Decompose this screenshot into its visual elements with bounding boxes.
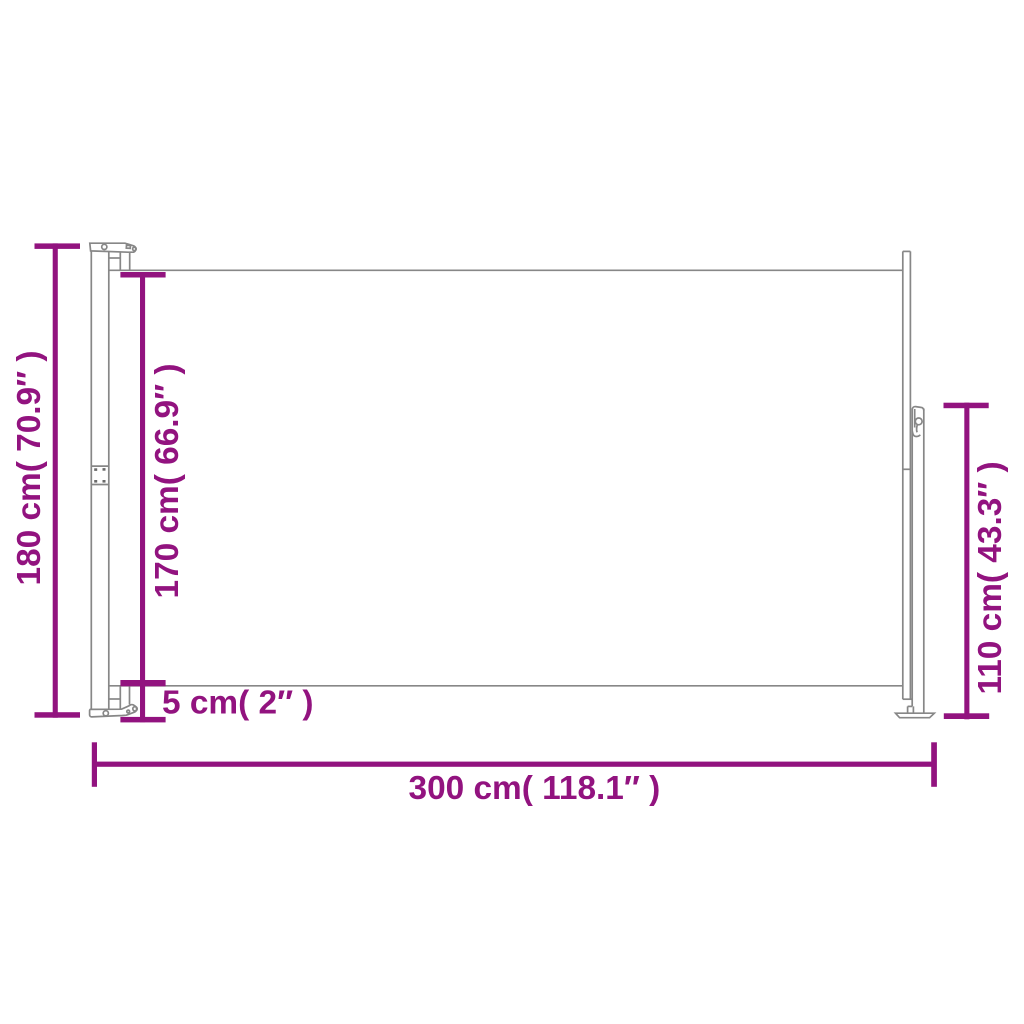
svg-text:300 cm( 118.1″ ): 300 cm( 118.1″ ) (409, 770, 661, 807)
svg-text:180 cm( 70.9″ ): 180 cm( 70.9″ ) (11, 350, 48, 585)
svg-text:170 cm( 66.9″ ): 170 cm( 66.9″ ) (149, 363, 186, 598)
svg-text:110 cm( 43.3″ ): 110 cm( 43.3″ ) (972, 461, 1009, 694)
svg-text:5 cm( 2″ ): 5 cm( 2″ ) (162, 685, 313, 722)
